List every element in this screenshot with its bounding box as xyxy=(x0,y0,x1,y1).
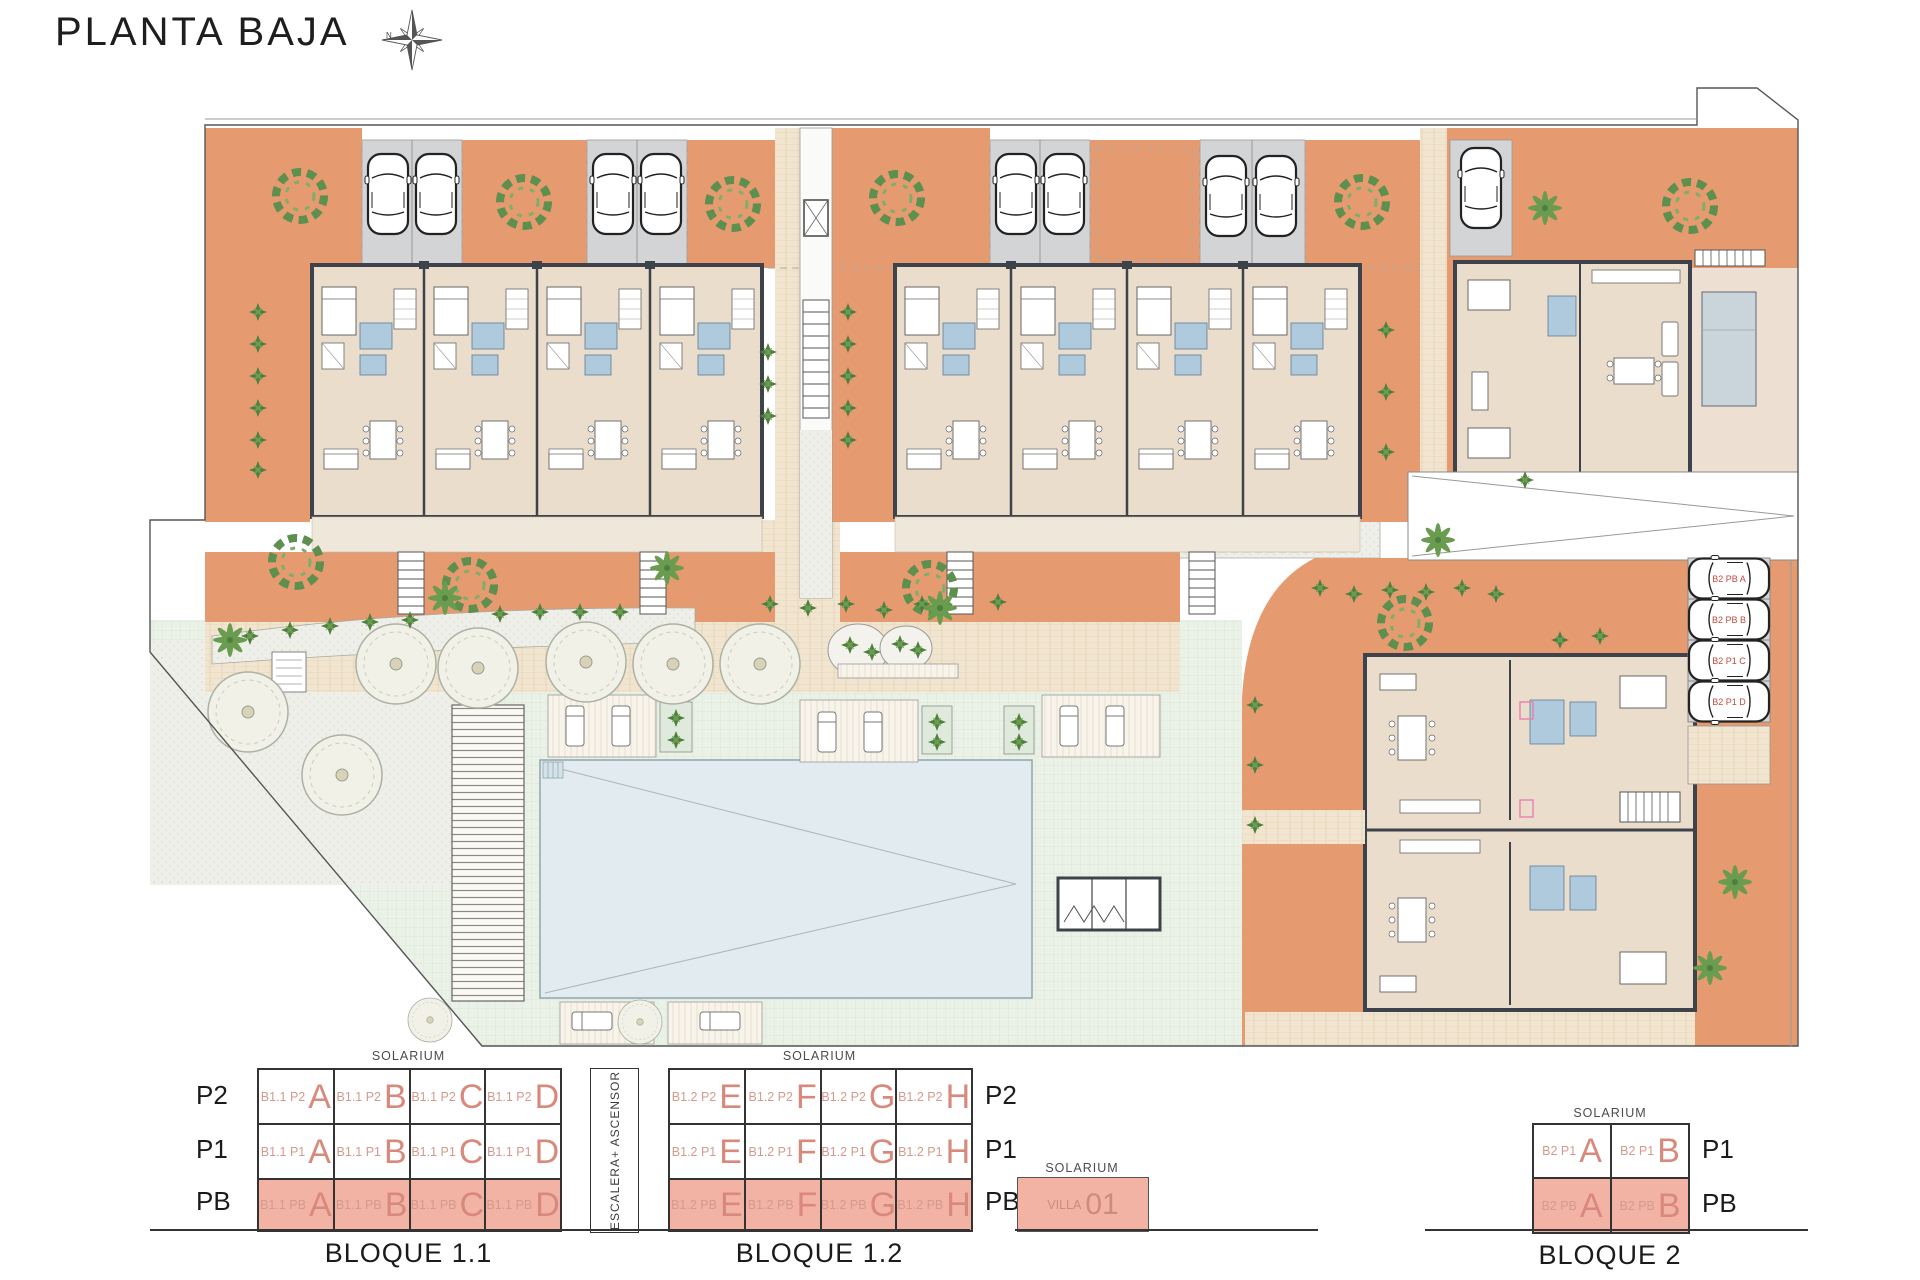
villa-01-cell: VILLA 01 xyxy=(1017,1177,1149,1232)
building-bloque-1-1 xyxy=(312,261,762,552)
legend-cell: B1.2 P2H xyxy=(896,1069,972,1124)
stairs-elevator-box: ESCALERA+ ASCENSOR xyxy=(590,1068,639,1233)
parking-label: B2 P1 C xyxy=(1712,656,1746,666)
legend-cell: B1.2 PBH xyxy=(896,1179,972,1231)
bloque-1-1-caption: BLOQUE 1.1 xyxy=(257,1238,560,1269)
terrace-stairs xyxy=(398,552,424,614)
bloque-1-2-caption: BLOQUE 1.2 xyxy=(668,1238,971,1269)
floor-label-p2: P2 xyxy=(196,1080,228,1111)
floor-label-p1: P1 xyxy=(985,1134,1017,1165)
legend-cell: B1.2 P1E xyxy=(669,1124,745,1179)
ground-line xyxy=(1015,1229,1318,1231)
floor-label-p1: P1 xyxy=(196,1134,228,1165)
parking-label: B2 PB A xyxy=(1712,574,1746,584)
legend-cell: B1.1 P2D xyxy=(485,1069,561,1124)
floor-label-p1: P1 xyxy=(1702,1134,1734,1165)
legend-cell: B1.1 PBB xyxy=(334,1179,410,1231)
legend-cell: B1.1 P1D xyxy=(485,1124,561,1179)
legend-cell: B1.1 P2C xyxy=(410,1069,486,1124)
legend-cell: B1.2 P1F xyxy=(745,1124,821,1179)
legend-cell: B1.1 P2A xyxy=(258,1069,334,1124)
pool-bar-building xyxy=(1058,878,1160,930)
north-label: N xyxy=(386,31,392,40)
legend-cell: B1.2 P2G xyxy=(821,1069,897,1124)
pergola xyxy=(452,705,524,1001)
floor-label-pb: PB xyxy=(1702,1188,1737,1219)
stair-elevator-band xyxy=(800,128,832,598)
floor-plan-page: PLANTA BAJA xyxy=(0,0,1920,1280)
bloque-1-2-grid: B1.2 P2EB1.2 P2FB1.2 P2GB1.2 P2HB1.2 P1E… xyxy=(668,1068,973,1232)
pool xyxy=(540,760,1032,998)
bloque-2-caption: BLOQUE 2 xyxy=(1532,1240,1688,1271)
legend-cell: B1.1 PBA xyxy=(258,1179,334,1231)
ground-line xyxy=(1425,1229,1808,1231)
legend-cell: B2 P1A xyxy=(1533,1124,1611,1178)
legend-cell: B1.1 P1B xyxy=(334,1124,410,1179)
floor-label-pb: PB xyxy=(196,1186,231,1217)
legend-cell: B1.1 P1A xyxy=(258,1124,334,1179)
legend-cell: B1.2 P1H xyxy=(896,1124,972,1179)
villa-number: 01 xyxy=(1085,1190,1118,1220)
terrace-stairs xyxy=(1189,552,1215,614)
ramp xyxy=(1408,472,1798,560)
parking-column-right: B2 PB A B2 PB B B2 P1 C B2 P1 D xyxy=(1688,556,1770,785)
floor-label-p2: P2 xyxy=(985,1080,1017,1111)
legend-cell: B1.2 P2F xyxy=(745,1069,821,1124)
compass-north-icon: N xyxy=(382,10,442,70)
ground-line xyxy=(150,1229,970,1231)
legend-cell: B1.2 P1G xyxy=(821,1124,897,1179)
solarium-label: SOLARIUM xyxy=(1532,1106,1688,1120)
legend-cell: B2 P1B xyxy=(1611,1124,1689,1178)
legend-cell: B1.2 PBE xyxy=(669,1179,745,1231)
villa-pool xyxy=(1702,292,1756,406)
legend-cell: B1.2 PBG xyxy=(821,1179,897,1231)
solarium-label: SOLARIUM xyxy=(257,1049,560,1063)
stairs-elevator-label: ESCALERA+ ASCENSOR xyxy=(608,1071,622,1230)
bloque-1-1-grid: B1.1 P2AB1.1 P2BB1.1 P2CB1.1 P2DB1.1 P1A… xyxy=(257,1068,562,1232)
building-bloque-1-2 xyxy=(895,261,1360,552)
legend-cell: B1.1 P1C xyxy=(410,1124,486,1179)
solarium-label: SOLARIUM xyxy=(1017,1161,1147,1175)
legend-cell: B1.1 PBC xyxy=(410,1179,486,1231)
legend-cell: B1.1 P2B xyxy=(334,1069,410,1124)
solarium-label: SOLARIUM xyxy=(668,1049,971,1063)
villa-code: VILLA xyxy=(1047,1198,1081,1212)
parking-label: B2 PB B xyxy=(1712,615,1746,625)
legend-cell: B2 PBB xyxy=(1611,1178,1689,1233)
legend-cell: B1.2 PBF xyxy=(745,1179,821,1231)
legend-cell: B1.2 P2E xyxy=(669,1069,745,1124)
floor-label-pb: PB xyxy=(985,1186,1020,1217)
bloque-2-grid: B2 P1AB2 P1BB2 PBAB2 PBB xyxy=(1532,1123,1690,1234)
legend-cell: B1.1 PBD xyxy=(485,1179,561,1231)
legend-cell: B2 PBA xyxy=(1533,1178,1611,1233)
parking-label: B2 P1 D xyxy=(1712,697,1746,707)
